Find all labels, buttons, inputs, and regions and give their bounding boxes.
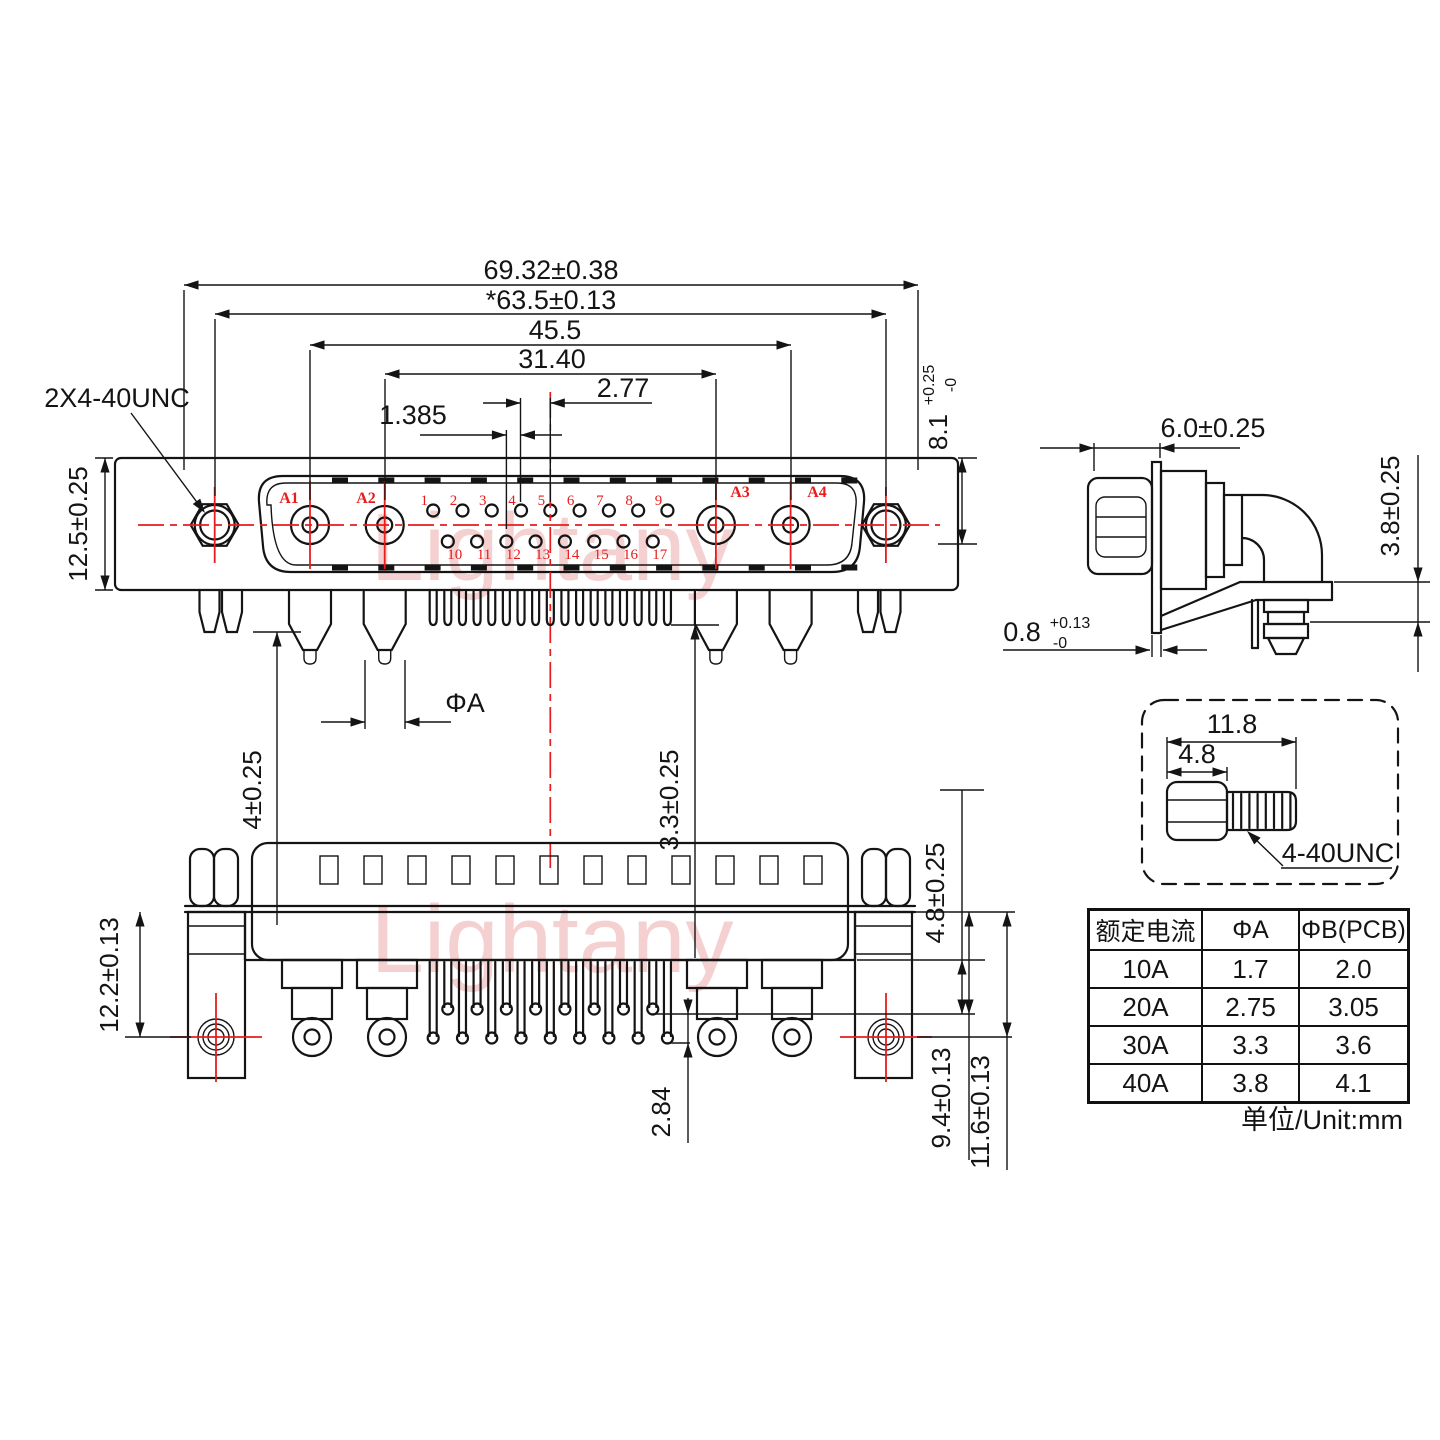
dim-pin-pitch: 2.77 [597, 373, 650, 403]
table-cell: 30A [1089, 1026, 1203, 1064]
dim-plate-tol-plus: +0.13 [1050, 615, 1091, 632]
table-header-cell: ΦB(PCB) [1299, 910, 1409, 951]
dim-total-width: 69.32±0.38 [484, 255, 619, 285]
dim-plate: 0.8 [1003, 617, 1041, 647]
dim-pin-length: 3.3±0.25 [654, 749, 684, 850]
spec-table: 额定电流ΦAΦB(PCB)10A1.72.020A2.753.0530A3.33… [1087, 908, 1400, 1104]
table-row: 20A2.753.05 [1089, 988, 1409, 1026]
rated-current-table: 额定电流ΦAΦB(PCB)10A1.72.020A2.753.0530A3.33… [1087, 908, 1410, 1104]
dim-screw-length: 11.8 [1207, 709, 1258, 739]
pin-number-label: 8 [625, 493, 633, 509]
dim-plate-tol-minus: -0 [1053, 635, 1067, 652]
dim-screw-head: 4.8 [1178, 739, 1216, 769]
pin-number-label: 10 [447, 547, 462, 563]
dim-coax-inner-span: 31.40 [518, 344, 586, 374]
dim-insert-depth-tol-minus: -0 [943, 378, 960, 392]
dim-short-pin: 9.4±0.13 [926, 1047, 956, 1148]
pin-number-label: 7 [596, 493, 604, 509]
pin-number-label: 16 [623, 547, 639, 563]
table-cell: 4.1 [1299, 1064, 1409, 1103]
table-cell: 10A [1089, 950, 1203, 988]
table-row: 30A3.33.6 [1089, 1026, 1409, 1064]
dim-standoff: 3.8±0.25 [1375, 455, 1405, 556]
dim-peg-length: 4±0.25 [237, 750, 267, 829]
dim-coax-outer-span: 45.5 [529, 315, 582, 345]
coax-pin-label: A1 [279, 490, 299, 507]
pin-number-label: 5 [538, 493, 546, 509]
pin-number-label: 13 [535, 547, 550, 563]
table-cell: 3.3 [1202, 1026, 1299, 1064]
table-row: 10A1.72.0 [1089, 950, 1409, 988]
pin-number-label: 4 [508, 493, 516, 509]
table-header-row: 额定电流ΦAΦB(PCB) [1089, 910, 1409, 951]
dim-row-offset: 1.385 [379, 400, 447, 430]
dim-pin-dia: ΦA [445, 688, 485, 718]
table-cell: 20A [1089, 988, 1203, 1026]
thread-callout: 2X4-40UNC [44, 383, 190, 413]
coax-pin-label: A2 [356, 490, 376, 507]
dim-long-pin: 11.6±0.13 [965, 1055, 995, 1169]
table-cell: 3.6 [1299, 1026, 1409, 1064]
table-cell: 3.05 [1299, 988, 1409, 1026]
watermark-text: Lightany [371, 886, 734, 993]
table-cell: 1.7 [1202, 950, 1299, 988]
pin-number-label: 17 [652, 547, 668, 563]
pin-number-label: 2 [450, 493, 458, 509]
dim-insert-depth: 8.1 [923, 414, 953, 450]
front-view [95, 280, 977, 958]
dim-insert-depth-tol-plus: +0.25 [921, 365, 938, 406]
table-cell: 3.8 [1202, 1064, 1299, 1103]
table-row: 40A3.84.1 [1089, 1064, 1409, 1103]
coax-pin-label: A3 [730, 484, 750, 501]
table-header-cell: ΦA [1202, 910, 1299, 951]
dim-tip-stagger: 2.84 [646, 1087, 676, 1138]
unit-note: 单位/Unit:mm [1087, 1098, 1403, 1137]
dim-depth: 6.0±0.25 [1161, 413, 1266, 443]
table-cell: 40A [1089, 1064, 1203, 1103]
pin-number-label: 9 [655, 493, 663, 509]
pin-number-label: 11 [477, 547, 491, 563]
dim-bracket-height: 12.2±0.13 [94, 917, 124, 1032]
pin-number-label: 12 [506, 547, 521, 563]
dim-flange-height: 12.5±0.25 [63, 466, 93, 581]
pin-number-label: 6 [567, 493, 575, 509]
table-cell: 2.0 [1299, 950, 1409, 988]
technical-drawing-page: Lightany Lightany A1A2A3A412345678910111… [0, 0, 1440, 1440]
pin-number-label: 15 [594, 547, 609, 563]
table-cell: 2.75 [1202, 988, 1299, 1026]
dim-flange-width: *63.5±0.13 [486, 285, 616, 315]
thread-label: 4-40UNC [1282, 838, 1395, 868]
pin-number-label: 3 [479, 493, 487, 509]
watermark-text: Lightany [371, 494, 734, 601]
pin-number-label: 14 [564, 547, 580, 563]
drawing-canvas: Lightany Lightany A1A2A3A412345678910111… [0, 0, 1440, 1440]
dim-tail-length: 4.8±0.25 [920, 842, 950, 943]
pin-number-label: 1 [420, 493, 428, 509]
table-header-cell: 额定电流 [1089, 910, 1203, 951]
coax-pin-label: A4 [807, 484, 827, 501]
